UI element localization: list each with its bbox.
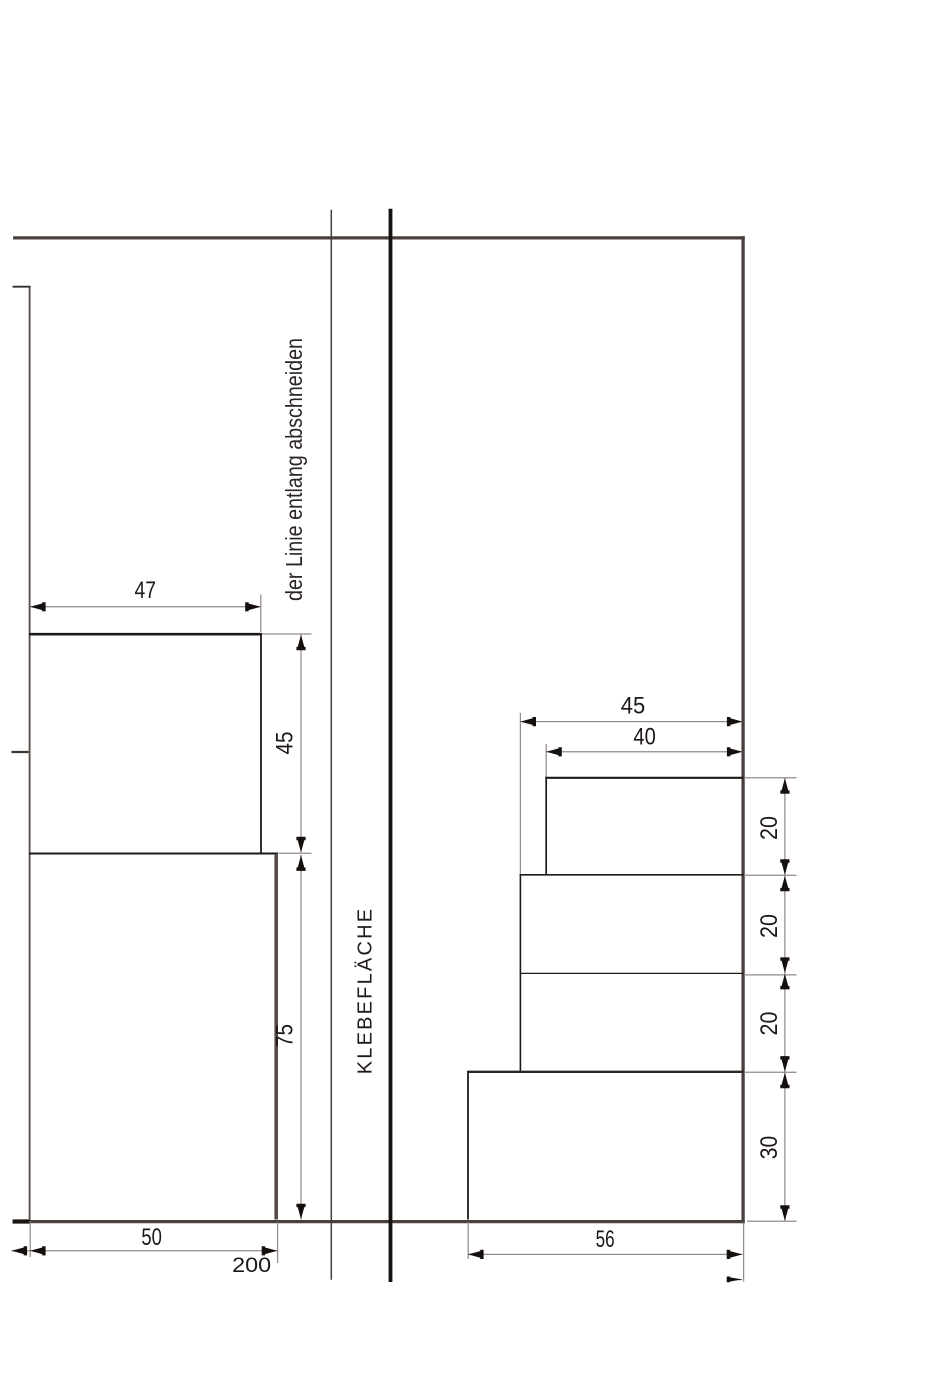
svg-text:KLEBEFLÄCHE: KLEBEFLÄCHE bbox=[354, 907, 376, 1075]
svg-text:47: 47 bbox=[135, 577, 157, 604]
svg-text:20: 20 bbox=[756, 816, 783, 840]
svg-text:20: 20 bbox=[756, 1012, 783, 1036]
svg-text:45: 45 bbox=[621, 692, 645, 719]
svg-text:56: 56 bbox=[596, 1226, 615, 1253]
svg-text:45: 45 bbox=[272, 732, 299, 755]
svg-text:der Linie entlang abschneiden: der Linie entlang abschneiden bbox=[281, 338, 307, 601]
svg-text:40: 40 bbox=[633, 723, 655, 750]
svg-text:30: 30 bbox=[756, 1136, 783, 1160]
svg-text:20: 20 bbox=[756, 914, 783, 938]
svg-text:50: 50 bbox=[141, 1224, 162, 1251]
svg-text:200: 200 bbox=[232, 1254, 271, 1277]
svg-text:75: 75 bbox=[272, 1024, 299, 1047]
